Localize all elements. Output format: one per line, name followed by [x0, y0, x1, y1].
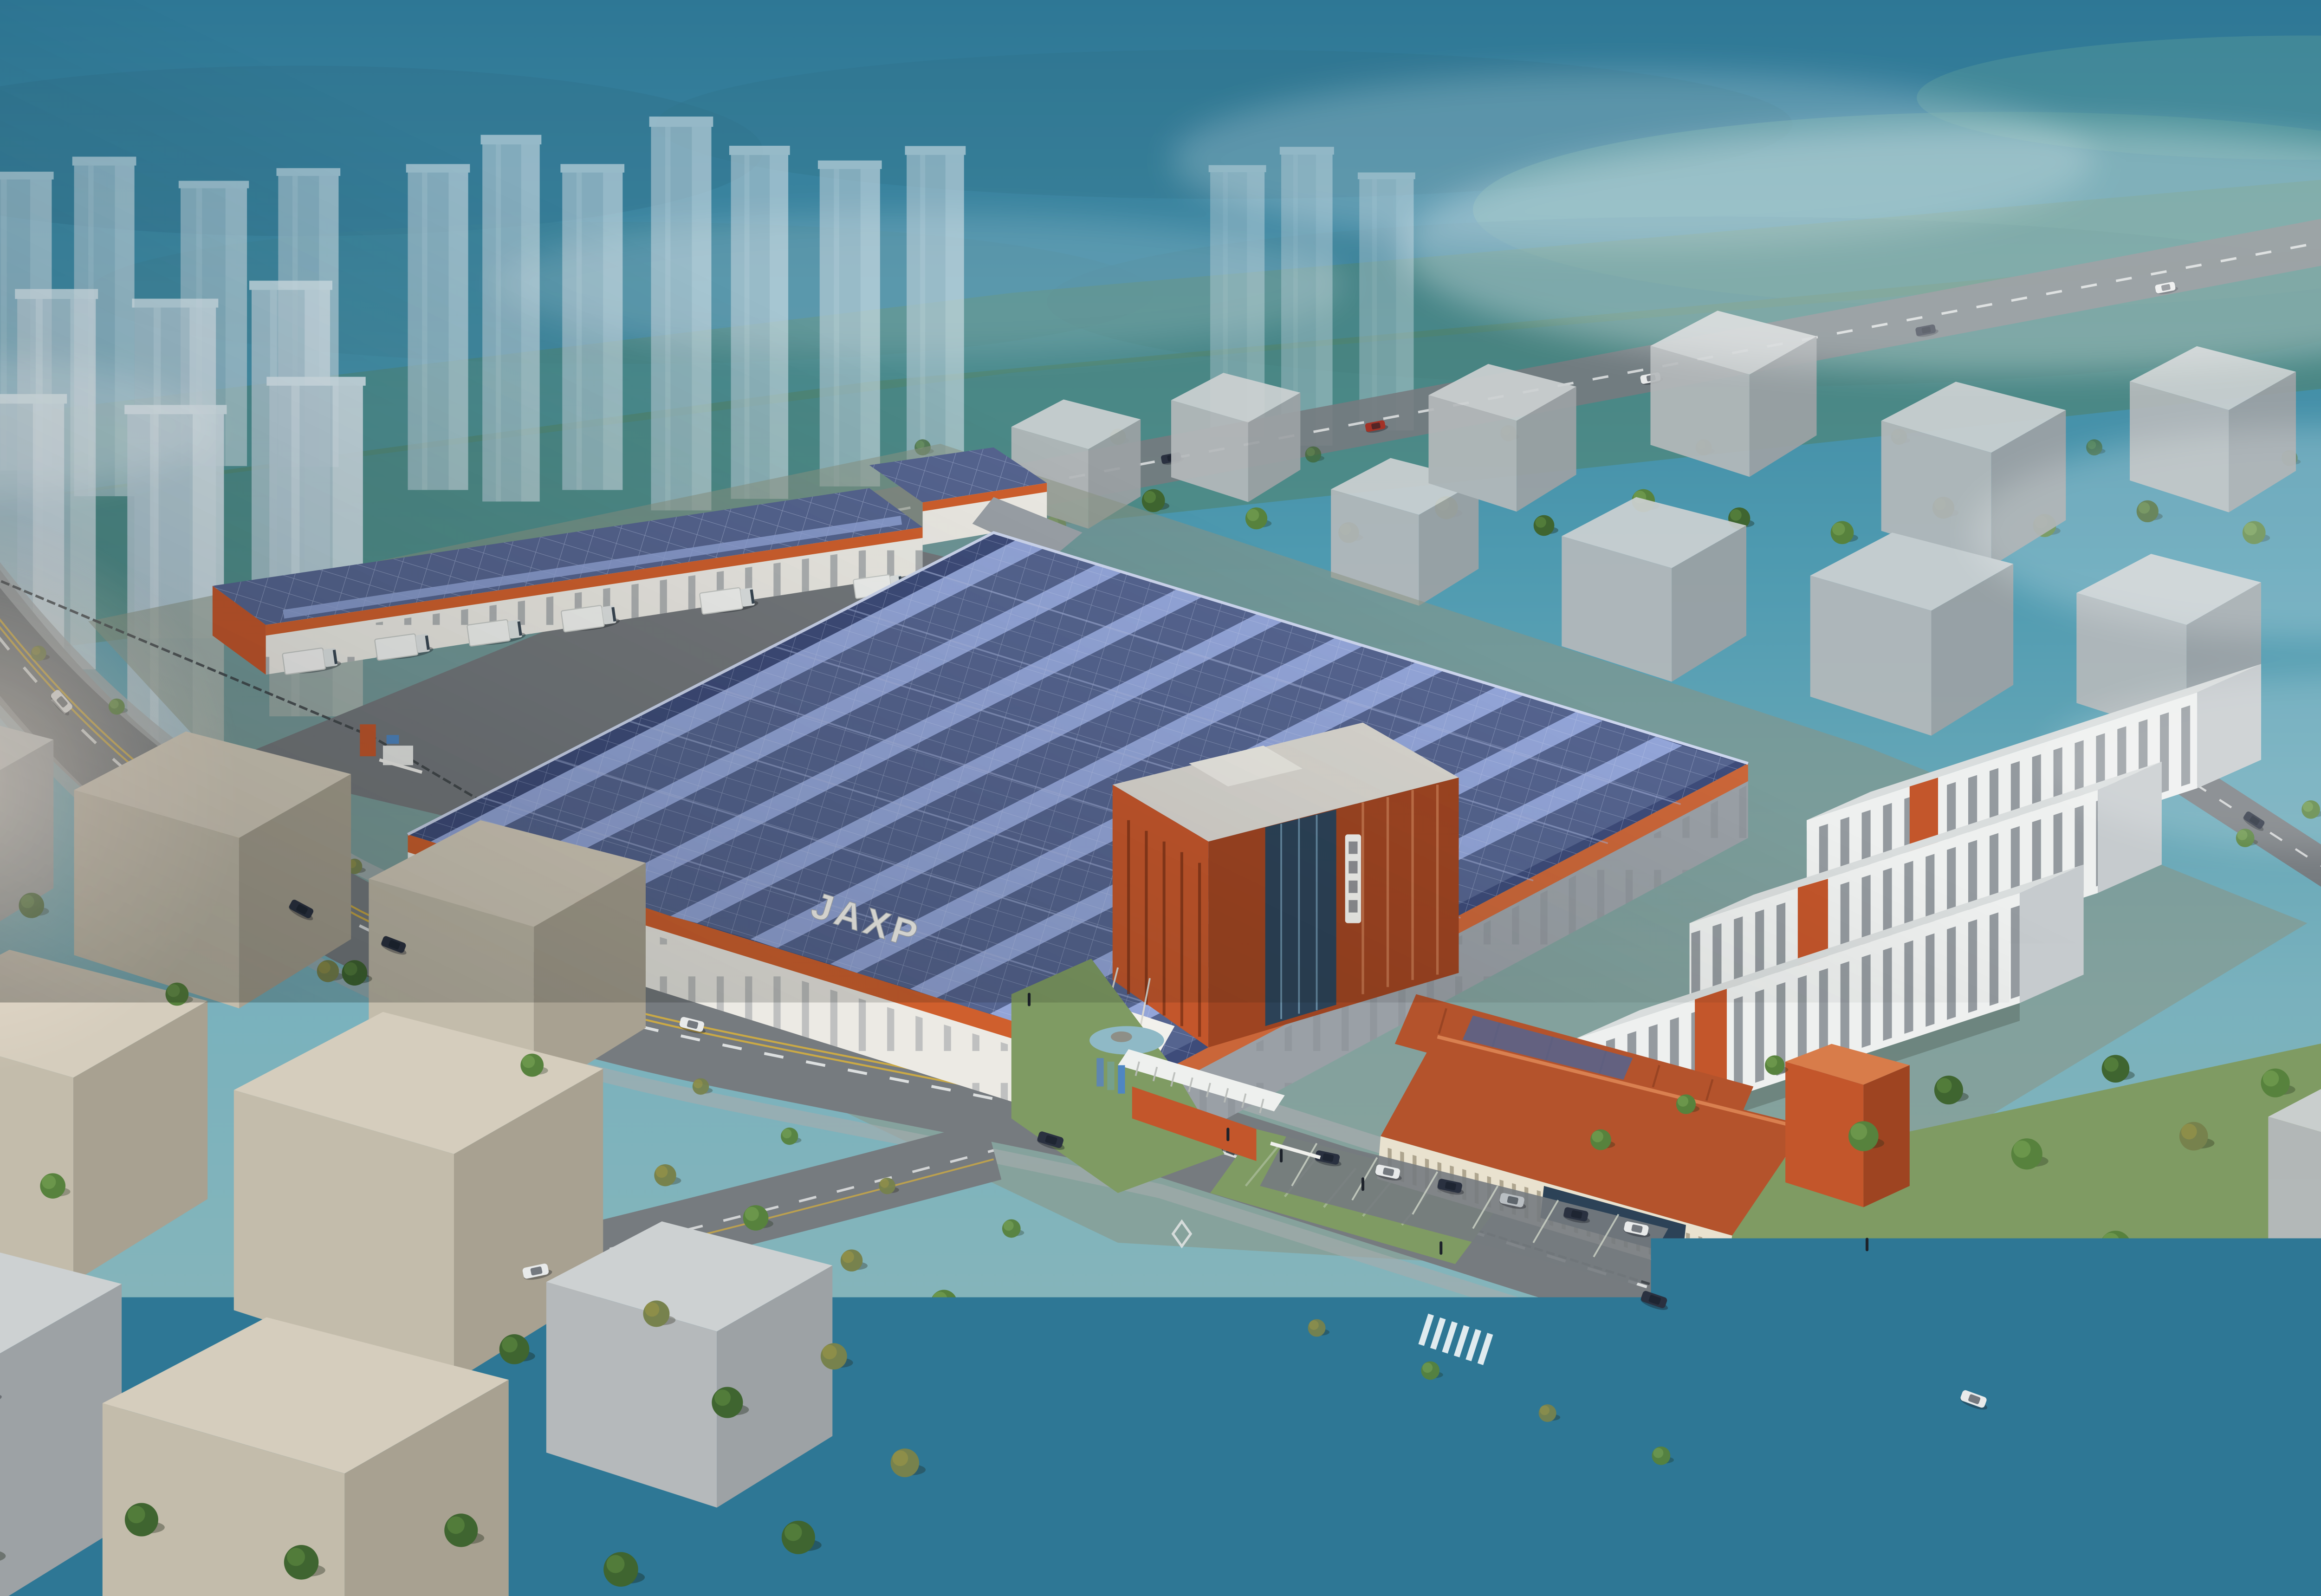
atmosphere — [0, 0, 2321, 1596]
vignette-bottom — [0, 0, 2321, 1596]
aerial-campus-rendering: JAXP — [0, 0, 2321, 1596]
